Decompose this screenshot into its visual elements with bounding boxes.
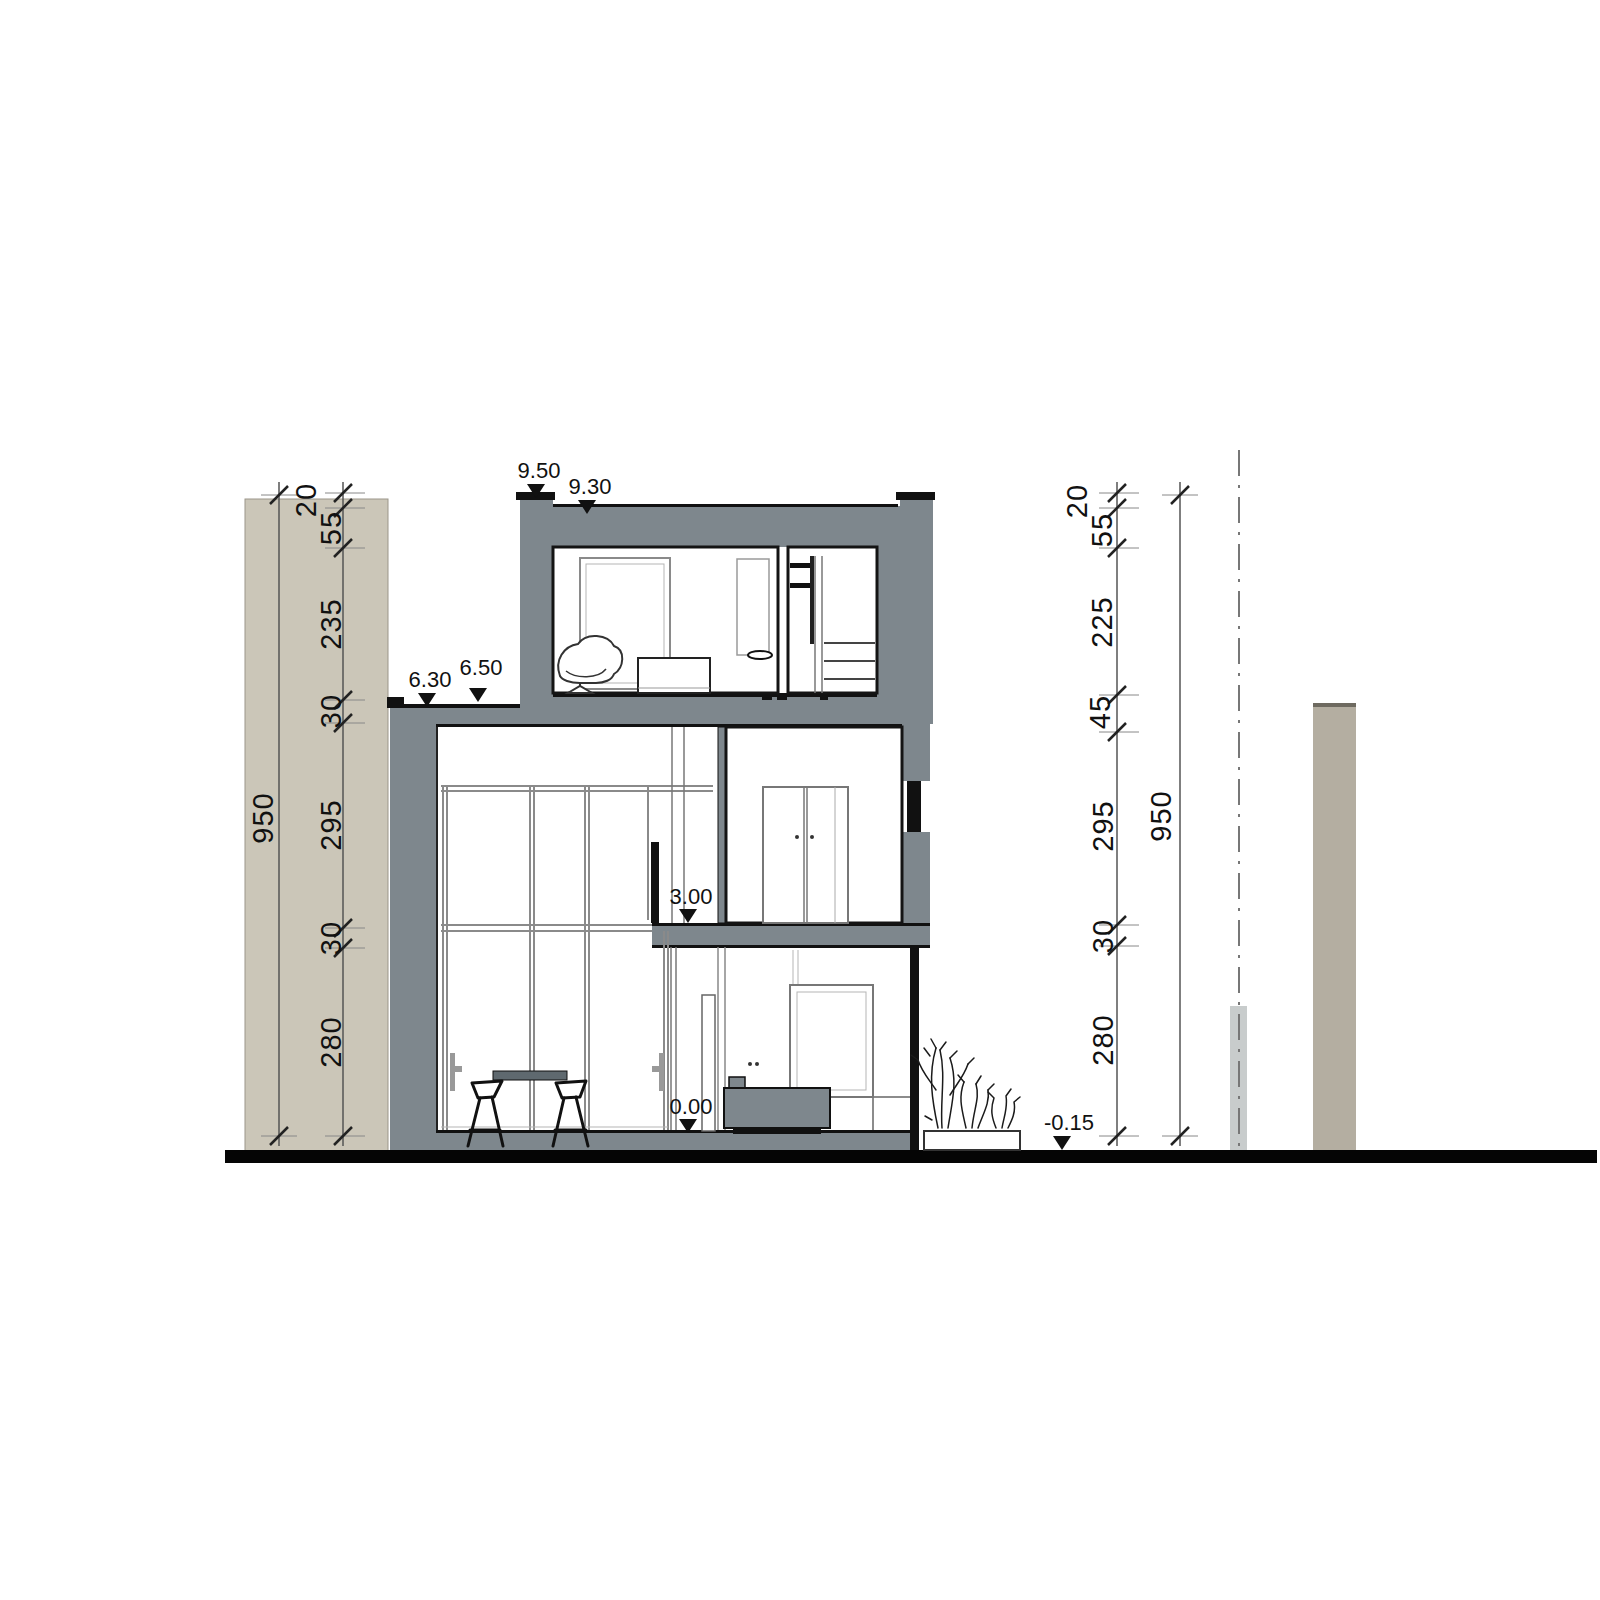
roof-membrane-line [553,504,898,507]
level-label-950: 9.50 [518,458,561,483]
level-label-930: 9.30 [569,474,612,499]
void-railing [651,842,659,923]
level-label-300: 3.00 [670,884,713,909]
second-floor-slab [520,696,933,724]
threshold-3 [820,694,828,700]
section-drawing: 9.50 9.30 6.30 6.50 3.00 0.00 -0.15 [0,0,1600,1600]
bedroom-door [737,559,769,655]
parapet-cap-right [896,492,935,500]
level-label-terrain: -0.15 [1044,1110,1094,1135]
right-parapet [900,500,933,508]
shelf-2 [790,583,812,588]
dim-right-seg-2: 225 [1086,596,1118,647]
annex-roof-slab [390,708,520,724]
neighbor-building-right [1313,703,1356,1151]
dim-right-seg-3: 45 [1084,695,1116,729]
picture-window [790,985,873,1097]
right-wall-mid-a [902,724,930,781]
planter [924,1131,1020,1150]
right-wall-mid-b [902,832,930,870]
right-wall-upper [877,547,933,696]
threshold-2 [777,694,787,700]
wardrobe-handle-left [795,835,799,839]
shelf-1 [790,563,812,568]
first-floor-slab [652,925,930,947]
stair-zone-upper [788,547,877,693]
dim-right-seg-5: 30 [1087,919,1119,953]
section-drawing-page: 9.50 9.30 6.30 6.50 3.00 0.00 -0.15 [0,0,1600,1600]
level-label-630: 6.30 [409,667,452,692]
dim-left-seg-2: 235 [315,598,347,649]
dim-left-seg-1: 55 [315,511,347,545]
shelf-divider [810,556,814,644]
right-wall-ground [910,947,919,1150]
dim-left-total: 950 [247,792,279,843]
dim-left-seg-5: 30 [315,921,347,955]
bedroom-sideboard [638,658,710,693]
door-handle-right [659,1053,664,1091]
roof-slab [520,506,933,547]
dim-left-seg-3: 30 [315,694,347,728]
washbasin [748,651,772,659]
ground-line [225,1150,1597,1163]
dim-right-seg-1: 55 [1086,513,1118,547]
bar-table [493,1071,567,1080]
dim-right-total: 950 [1145,790,1177,841]
dim-right-seg-6: 280 [1087,1014,1119,1065]
ground-floor-line [436,1130,918,1133]
threshold-1 [762,694,772,700]
level-label-650: 6.50 [460,655,503,680]
dim-left-seg-6: 280 [315,1016,347,1067]
level-label-000: 0.00 [670,1094,713,1119]
left-wall-lower [390,705,436,1150]
first-floor-slab-bottom-line [652,945,930,948]
dim-left-seg-4: 295 [315,799,347,850]
dim-right-seg-4: 295 [1087,800,1119,851]
wardrobe [763,787,848,923]
stair-window [907,781,921,832]
door-handle-left [450,1053,455,1091]
annex-roof-line [390,704,520,708]
wardrobe-handle-right [810,835,814,839]
